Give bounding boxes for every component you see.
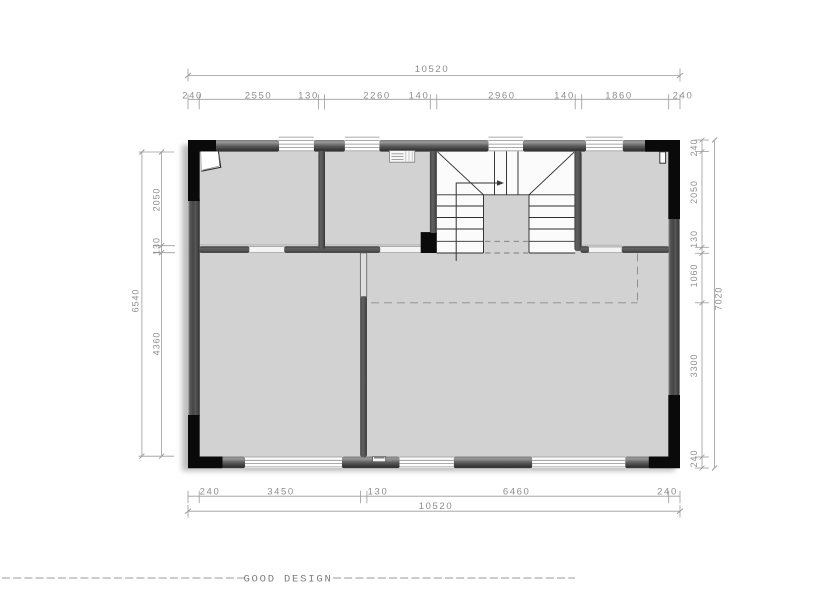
svg-text:130: 130 xyxy=(368,487,389,498)
svg-text:10520: 10520 xyxy=(415,64,449,75)
svg-text:1060: 1060 xyxy=(689,264,699,288)
svg-text:140: 140 xyxy=(409,90,430,101)
svg-text:130: 130 xyxy=(152,237,162,255)
svg-text:GOOD DESIGN: GOOD DESIGN xyxy=(243,574,332,586)
svg-text:4360: 4360 xyxy=(152,332,162,356)
svg-text:140: 140 xyxy=(554,90,575,101)
svg-text:2260: 2260 xyxy=(363,90,391,101)
svg-text:3300: 3300 xyxy=(689,354,699,378)
svg-text:240: 240 xyxy=(689,450,699,468)
svg-text:240: 240 xyxy=(200,487,221,498)
svg-text:6460: 6460 xyxy=(503,487,531,498)
svg-text:2550: 2550 xyxy=(245,90,273,101)
svg-text:3450: 3450 xyxy=(267,487,295,498)
svg-text:130: 130 xyxy=(298,90,319,101)
svg-text:240: 240 xyxy=(182,90,203,101)
svg-text:10520: 10520 xyxy=(419,501,453,512)
svg-text:240: 240 xyxy=(689,139,699,157)
svg-text:130: 130 xyxy=(689,230,699,248)
svg-text:2050: 2050 xyxy=(152,188,162,212)
svg-text:240: 240 xyxy=(673,90,694,101)
svg-text:240: 240 xyxy=(657,487,678,498)
svg-text:2960: 2960 xyxy=(488,90,516,101)
svg-text:6540: 6540 xyxy=(131,289,141,313)
svg-text:2050: 2050 xyxy=(689,180,699,204)
svg-text:7020: 7020 xyxy=(714,287,724,311)
svg-text:1860: 1860 xyxy=(605,90,633,101)
